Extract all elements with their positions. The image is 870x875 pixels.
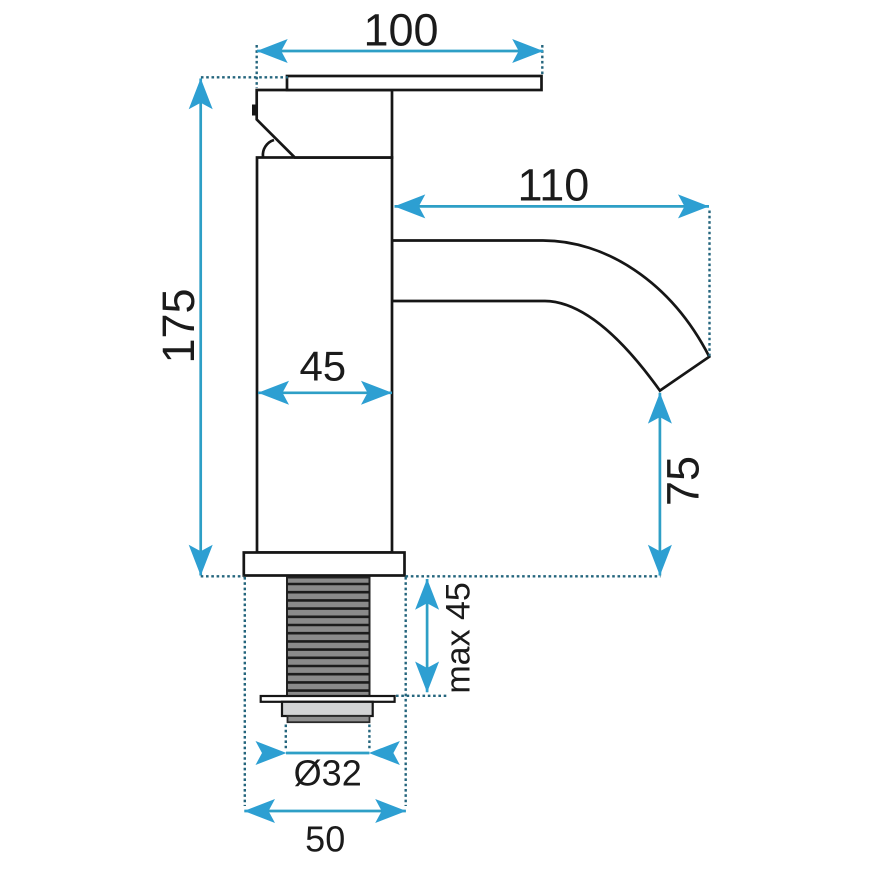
svg-text:175: 175 [153, 288, 204, 363]
svg-text:max 45: max 45 [440, 582, 478, 694]
svg-text:110: 110 [518, 160, 590, 211]
svg-text:75: 75 [658, 456, 709, 506]
svg-text:Ø32: Ø32 [294, 752, 362, 793]
svg-text:100: 100 [363, 5, 438, 56]
svg-text:45: 45 [299, 342, 346, 389]
svg-text:50: 50 [305, 819, 345, 860]
